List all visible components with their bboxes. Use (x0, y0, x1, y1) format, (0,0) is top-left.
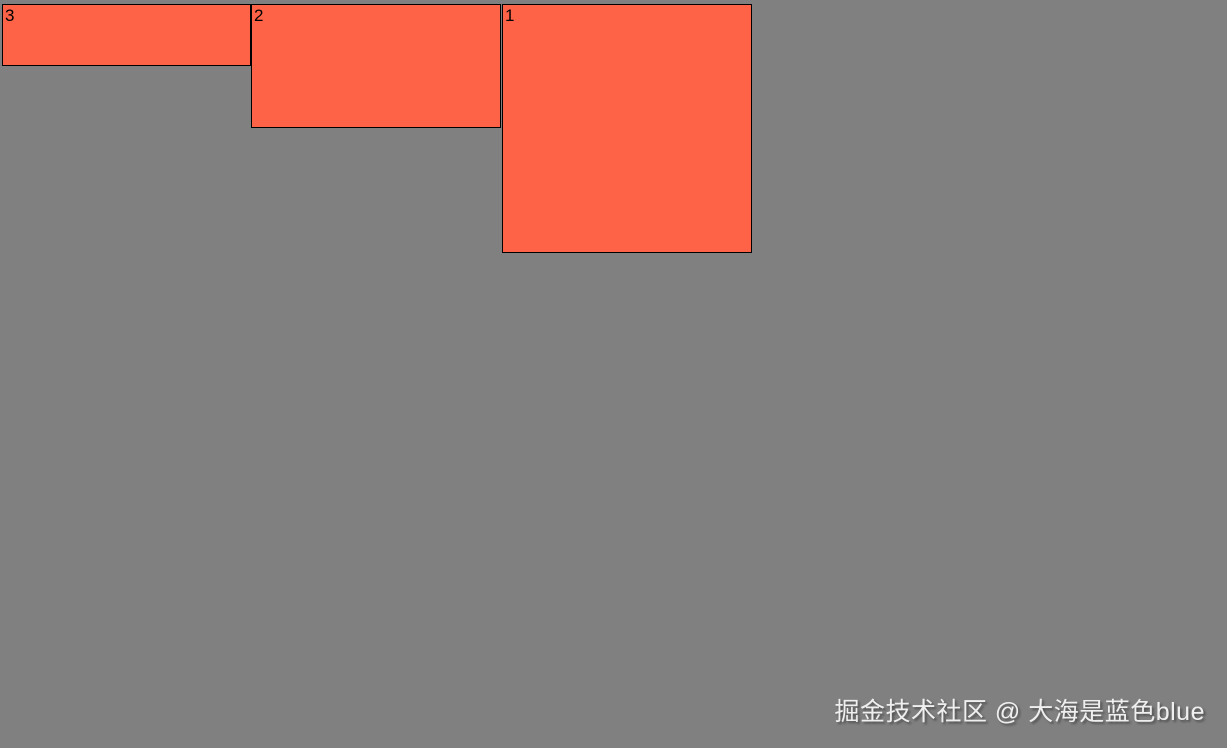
float-box-2: 2 (251, 4, 501, 128)
float-box-3: 3 (2, 4, 251, 66)
box-1-label: 1 (503, 5, 514, 26)
box-3-label: 3 (3, 5, 14, 26)
box-2-label: 2 (252, 5, 263, 26)
page-background: 3 2 1 掘金技术社区 @ 大海是蓝色blue (0, 0, 1227, 748)
watermark-text: 掘金技术社区 @ 大海是蓝色blue (834, 692, 1205, 728)
float-box-1: 1 (502, 4, 752, 253)
